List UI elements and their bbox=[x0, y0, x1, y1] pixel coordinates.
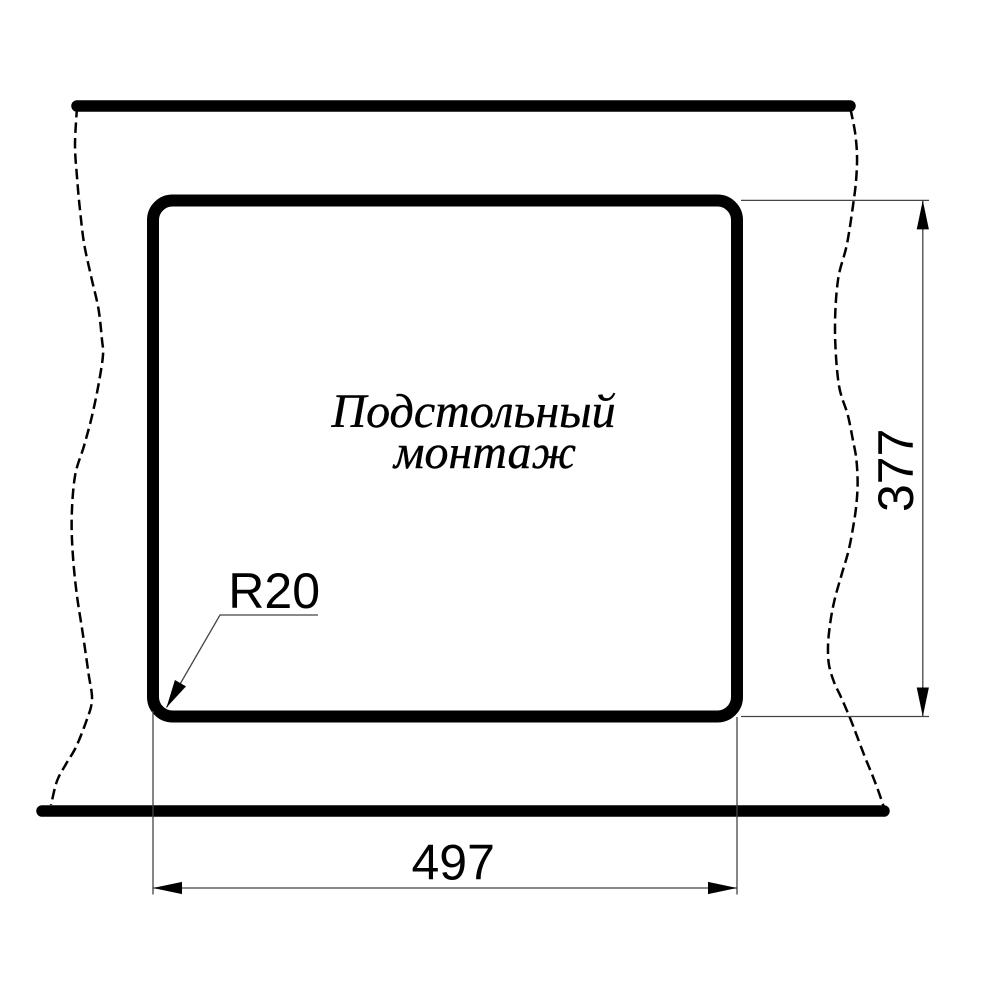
svg-text:R20: R20 bbox=[228, 563, 320, 619]
svg-text:497: 497 bbox=[412, 835, 495, 891]
svg-text:377: 377 bbox=[868, 429, 924, 512]
svg-text:монтаж: монтаж bbox=[392, 426, 576, 479]
